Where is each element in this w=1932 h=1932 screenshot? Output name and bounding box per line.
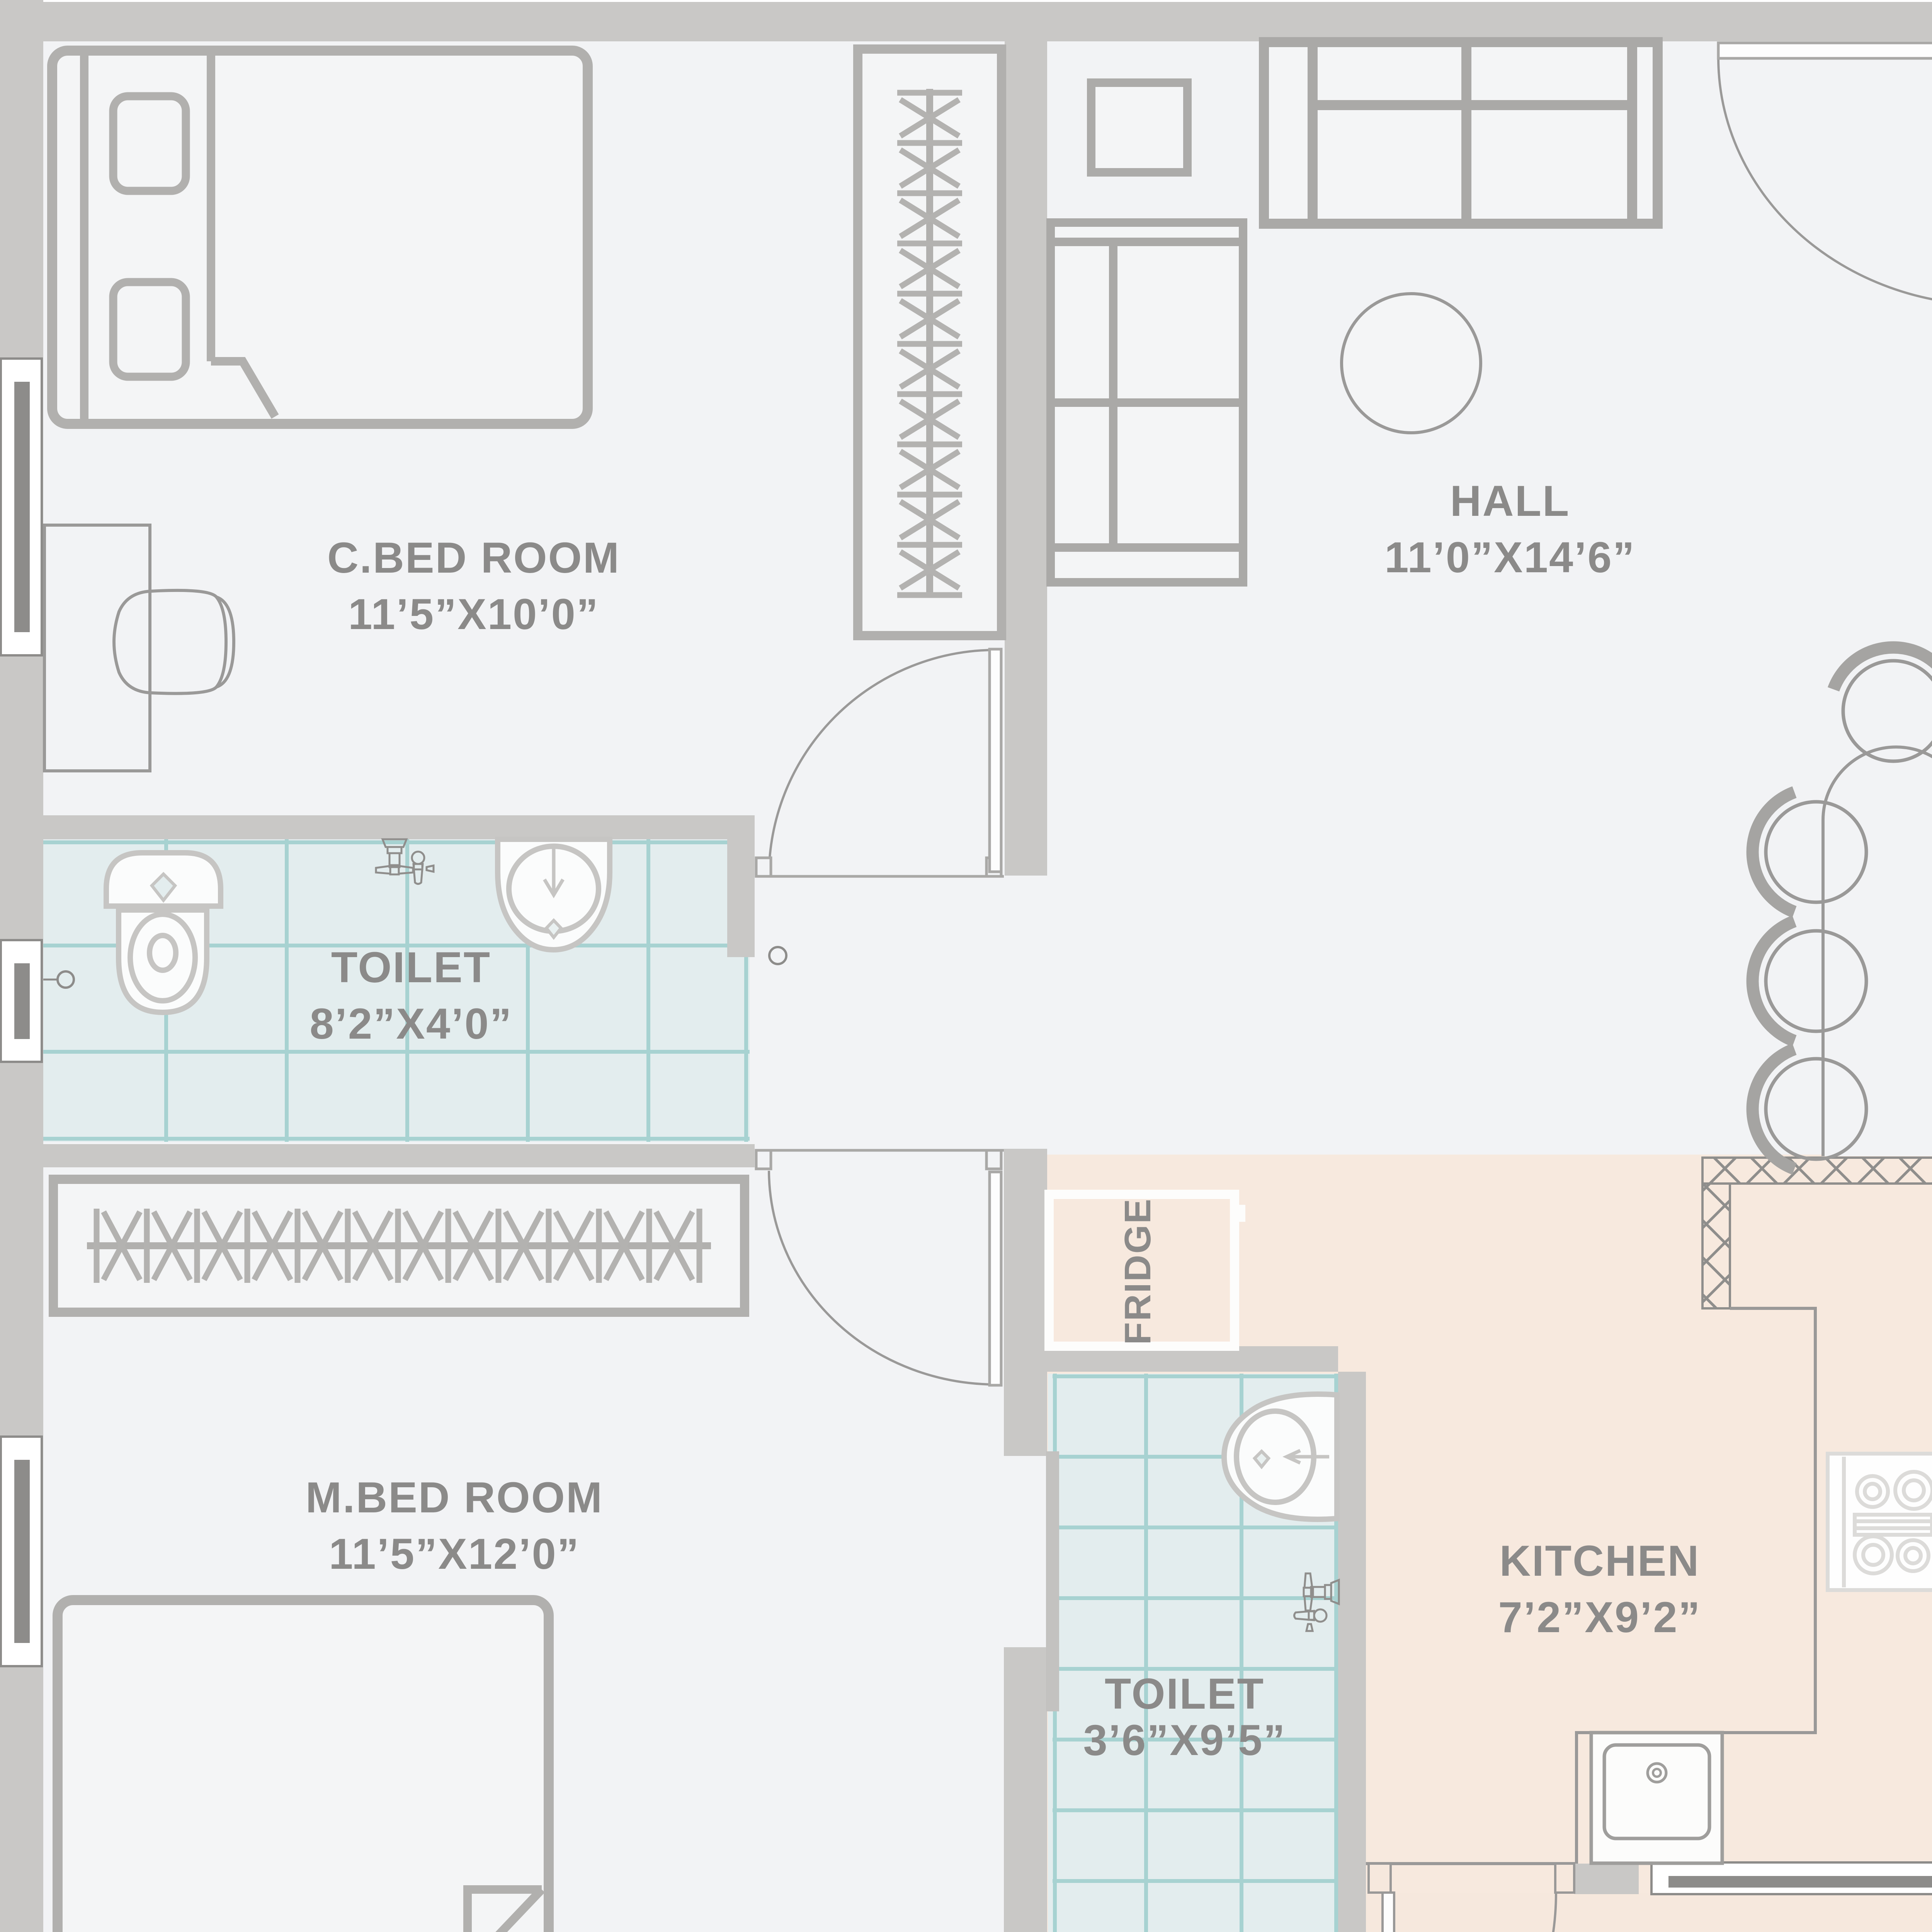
svg-text:8’2”X4’0”: 8’2”X4’0” <box>310 1000 512 1048</box>
svg-text:KITCHEN: KITCHEN <box>1500 1537 1700 1585</box>
svg-text:C.BED ROOM: C.BED ROOM <box>327 534 620 582</box>
svg-text:TOILET: TOILET <box>331 943 491 992</box>
svg-text:11’5”X12’0”: 11’5”X12’0” <box>329 1530 580 1578</box>
svg-text:TOILET: TOILET <box>1105 1670 1265 1718</box>
svg-text:3’6”X9’5”: 3’6”X9’5” <box>1083 1716 1286 1764</box>
svg-text:11’5”X10’0”: 11’5”X10’0” <box>348 590 599 638</box>
svg-text:M.BED ROOM: M.BED ROOM <box>306 1473 603 1522</box>
svg-text:HALL: HALL <box>1450 477 1570 525</box>
svg-text:FRIDGE: FRIDGE <box>1117 1198 1158 1345</box>
svg-text:7’2”X9’2”: 7’2”X9’2” <box>1498 1593 1701 1641</box>
svg-text:11’0”X14’6”: 11’0”X14’6” <box>1384 533 1636 582</box>
